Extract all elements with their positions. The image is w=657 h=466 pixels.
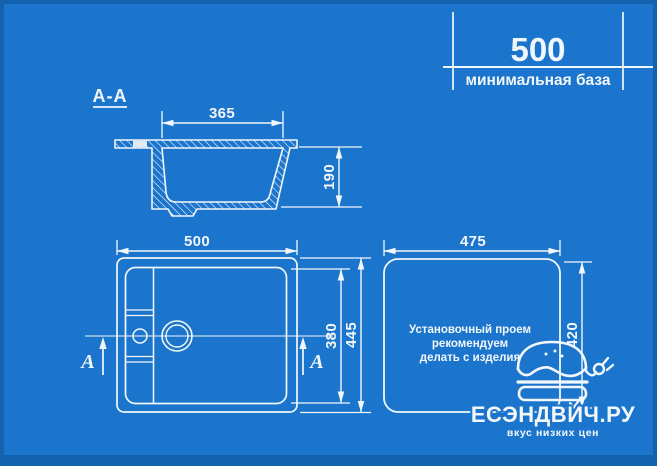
cut-arrow-left bbox=[99, 337, 106, 349]
section-mark-left: A bbox=[79, 351, 94, 373]
sink-outline bbox=[117, 258, 297, 412]
sesame-seed bbox=[561, 355, 564, 358]
section-mark-right: A bbox=[308, 351, 323, 373]
plug-prong bbox=[603, 358, 608, 364]
frame-border-bottom bbox=[0, 455, 657, 466]
minimal-base-dimension: 500 минимальная база bbox=[443, 12, 653, 90]
sink-section-profile bbox=[115, 140, 297, 216]
technical-drawing: 500 минимальная база A-A 365 190 bbox=[0, 0, 657, 466]
tap-hole-cut bbox=[133, 141, 147, 147]
install-note: Установочный проем рекомендуем делать с … bbox=[409, 324, 531, 364]
burger-lettuce bbox=[518, 367, 586, 376]
minimal-base-value: 500 bbox=[510, 31, 565, 68]
sesame-seed bbox=[545, 353, 548, 356]
section-view-title: A-A bbox=[93, 86, 128, 106]
install-opening-view: 475 420 Установочный проем рекомендуем д… bbox=[384, 233, 592, 412]
dim-475-value: 475 bbox=[460, 233, 486, 250]
install-note-line3: делать с изделия bbox=[420, 352, 520, 364]
frame-border-left bbox=[0, 0, 4, 466]
dim-380-value: 380 bbox=[323, 323, 340, 349]
plan-view: 500 A A 380 bbox=[79, 233, 371, 413]
install-note-line1: Установочный проем bbox=[409, 324, 531, 336]
frame-border-right bbox=[653, 0, 657, 466]
plug-prong bbox=[607, 365, 613, 370]
dim-500-value: 500 bbox=[184, 233, 210, 250]
burger-plug-icon bbox=[518, 342, 613, 400]
brand-tagline: вкус низких цен bbox=[507, 427, 599, 439]
dim-365: 365 bbox=[162, 105, 283, 138]
dim-365-value: 365 bbox=[209, 105, 235, 122]
dim-500: 500 bbox=[117, 233, 297, 255]
sesame-seed bbox=[554, 350, 557, 353]
brand-name: ЕСЭНДВИЧ.РУ bbox=[471, 402, 635, 427]
dim-445-value: 445 bbox=[343, 322, 360, 348]
dim-190-value: 190 bbox=[321, 164, 338, 190]
sink-drawing-sheet: 500 минимальная база A-A 365 190 bbox=[0, 0, 657, 466]
burger-bottom-bun bbox=[519, 387, 586, 400]
minimal-base-label: минимальная база bbox=[466, 72, 611, 89]
install-note-line2: рекомендуем bbox=[432, 338, 508, 350]
dim-190: 190 bbox=[281, 147, 362, 207]
frame-border-top bbox=[0, 0, 657, 4]
cut-arrow-right bbox=[299, 337, 306, 349]
dim-475: 475 bbox=[384, 233, 560, 256]
plug-body bbox=[594, 364, 604, 374]
section-view: A-A 365 190 bbox=[93, 86, 363, 216]
